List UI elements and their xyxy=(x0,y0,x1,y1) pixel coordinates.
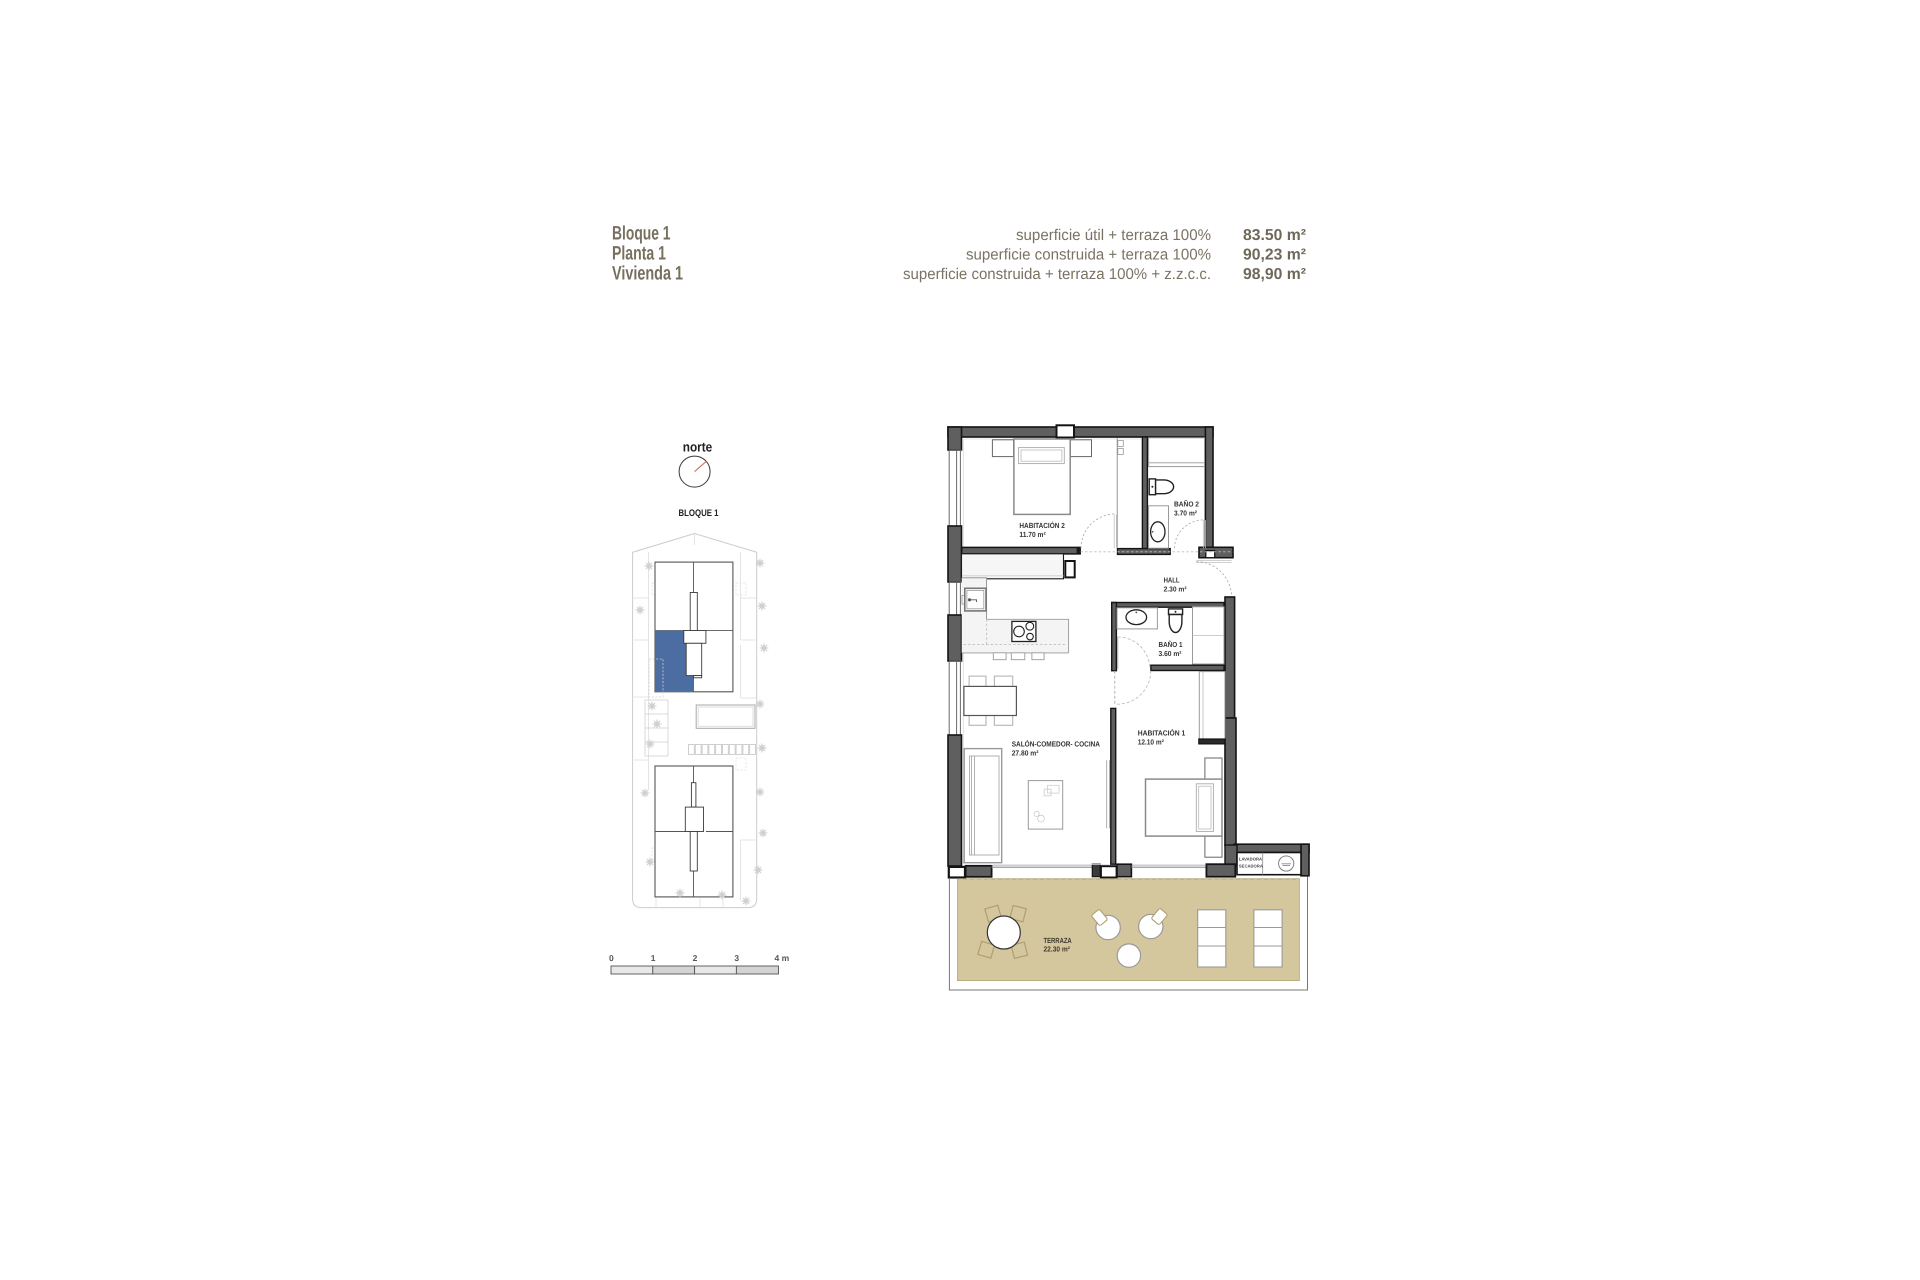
svg-text:HABITACIÓN 1: HABITACIÓN 1 xyxy=(1138,729,1186,738)
svg-text:3: 3 xyxy=(734,953,739,963)
svg-text:83.50 m²: 83.50 m² xyxy=(1243,227,1306,244)
svg-text:HABITACIÓN 2: HABITACIÓN 2 xyxy=(1019,521,1064,530)
svg-text:1: 1 xyxy=(651,953,656,963)
svg-text:27.80 m²: 27.80 m² xyxy=(1012,749,1039,758)
svg-text:11.70 m²: 11.70 m² xyxy=(1019,530,1046,539)
svg-text:SECADORA: SECADORA xyxy=(1239,864,1263,869)
svg-text:Bloque 1: Bloque 1 xyxy=(612,223,671,245)
svg-text:3.70 m²: 3.70 m² xyxy=(1174,509,1198,518)
svg-text:BLOQUE 1: BLOQUE 1 xyxy=(679,508,720,519)
svg-text:3.60 m²: 3.60 m² xyxy=(1159,649,1183,658)
svg-text:BAÑO 2: BAÑO 2 xyxy=(1174,500,1199,509)
svg-text:12.10 m²: 12.10 m² xyxy=(1138,738,1165,747)
svg-text:98,90 m²: 98,90 m² xyxy=(1243,266,1306,283)
svg-text:22.30 m²: 22.30 m² xyxy=(1044,945,1071,954)
svg-text:superficie construida + terraz: superficie construida + terraza 100% xyxy=(966,247,1211,264)
svg-text:norte: norte xyxy=(683,440,713,455)
svg-text:2: 2 xyxy=(693,953,698,963)
svg-text:BAÑO 1: BAÑO 1 xyxy=(1159,640,1183,649)
svg-text:Vivienda 1: Vivienda 1 xyxy=(612,263,683,285)
svg-text:0: 0 xyxy=(609,953,614,963)
svg-text:LAVADORA: LAVADORA xyxy=(1239,857,1262,862)
svg-text:HALL: HALL xyxy=(1164,576,1181,585)
svg-text:4 m: 4 m xyxy=(775,953,790,963)
svg-text:Planta 1: Planta 1 xyxy=(612,243,666,265)
svg-text:superficie construida + terraz: superficie construida + terraza 100% + z… xyxy=(903,266,1211,283)
svg-text:90,23 m²: 90,23 m² xyxy=(1243,247,1306,264)
svg-text:2.30 m²: 2.30 m² xyxy=(1164,585,1188,594)
svg-text:superficie útil + terraza 100%: superficie útil + terraza 100% xyxy=(1016,227,1211,244)
svg-text:SALÓN-COMEDOR- COCINA: SALÓN-COMEDOR- COCINA xyxy=(1012,740,1101,749)
